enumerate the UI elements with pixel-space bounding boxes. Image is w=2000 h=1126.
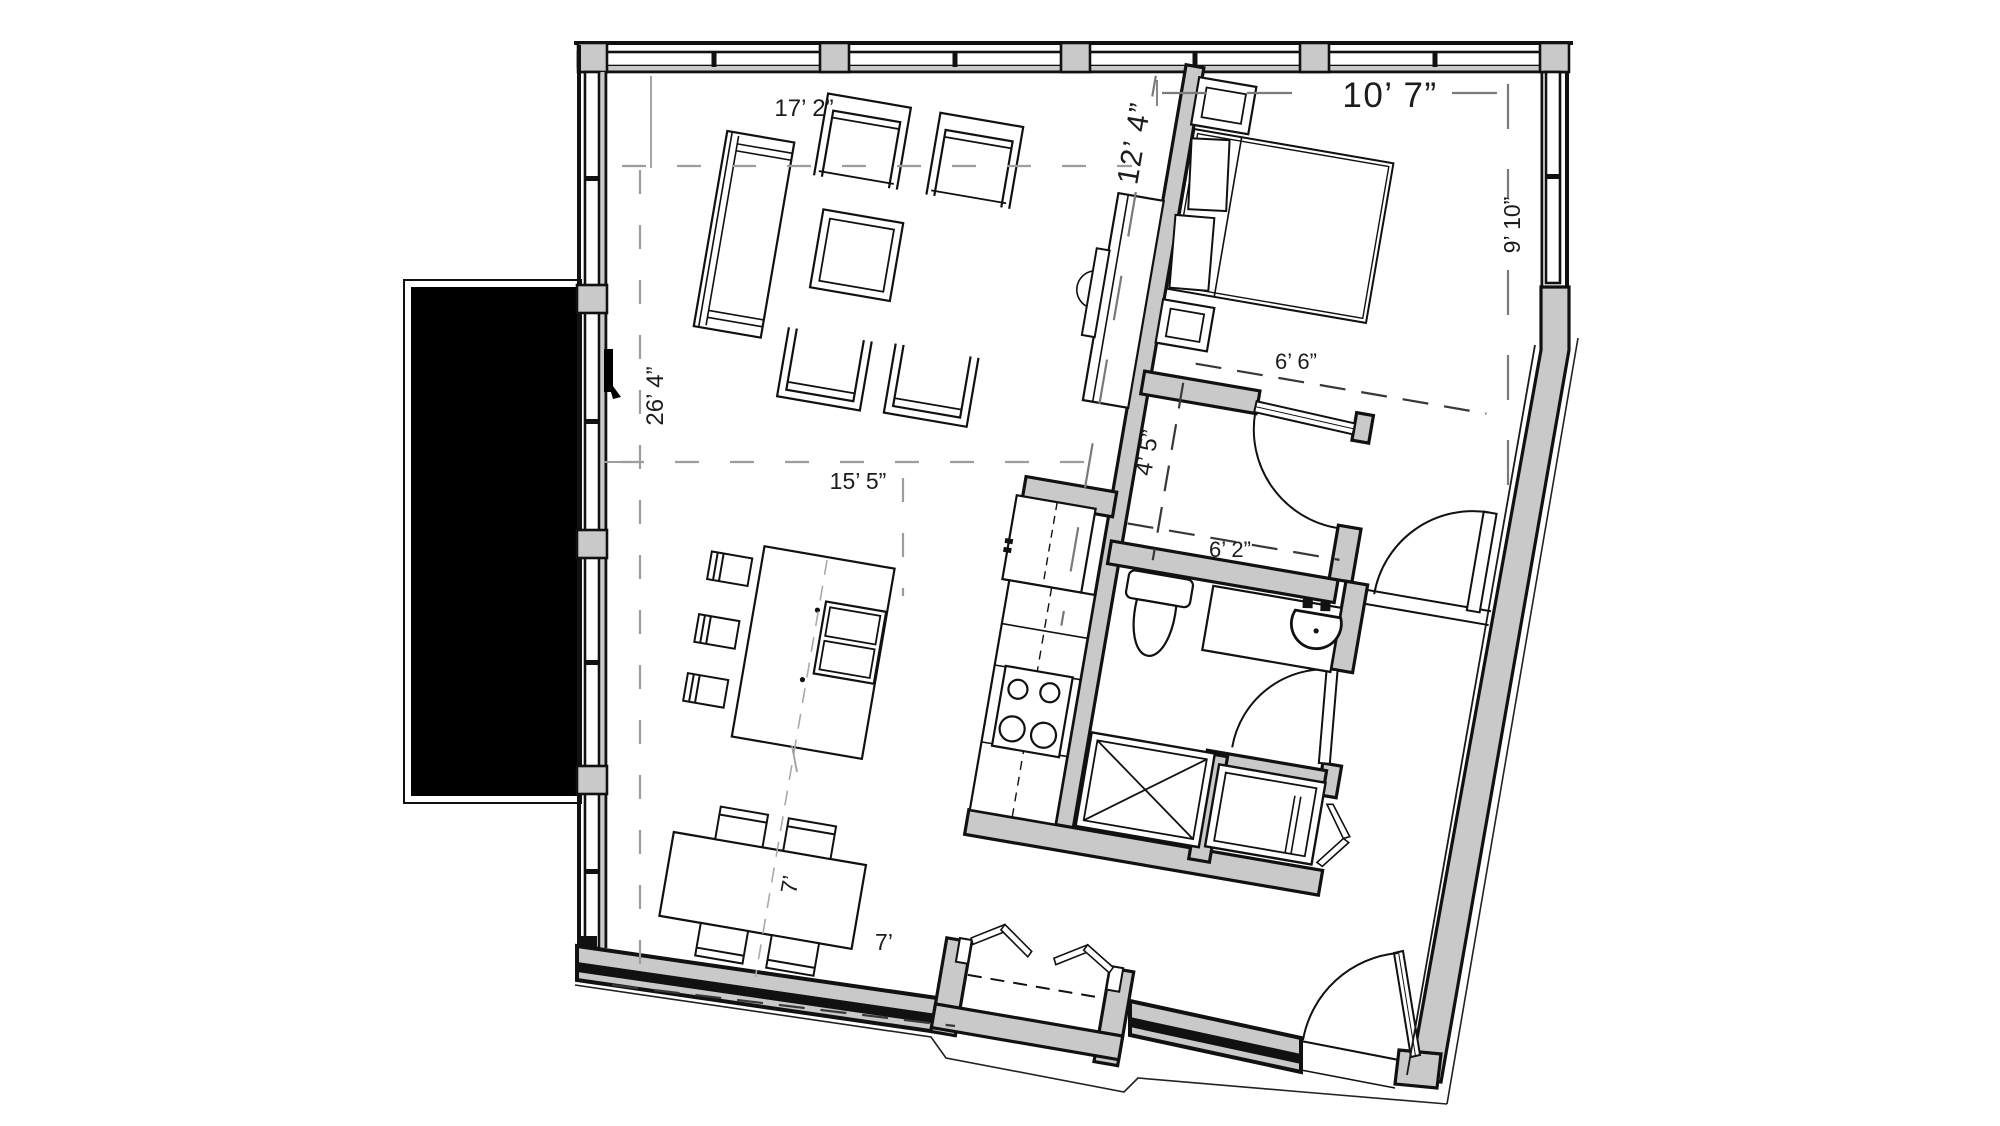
svg-text:6’ 6”: 6’ 6”	[1275, 349, 1317, 374]
svg-text:17’ 2”: 17’ 2”	[774, 95, 833, 122]
svg-text:10’ 7”: 10’ 7”	[1342, 76, 1437, 115]
svg-text:15’ 5”: 15’ 5”	[830, 468, 887, 494]
svg-text:26’ 4”: 26’ 4”	[642, 366, 669, 425]
svg-text:6’ 2”: 6’ 2”	[1209, 537, 1251, 562]
svg-text:9’ 10”: 9’ 10”	[1499, 197, 1525, 254]
svg-text:7’: 7’	[875, 929, 893, 955]
